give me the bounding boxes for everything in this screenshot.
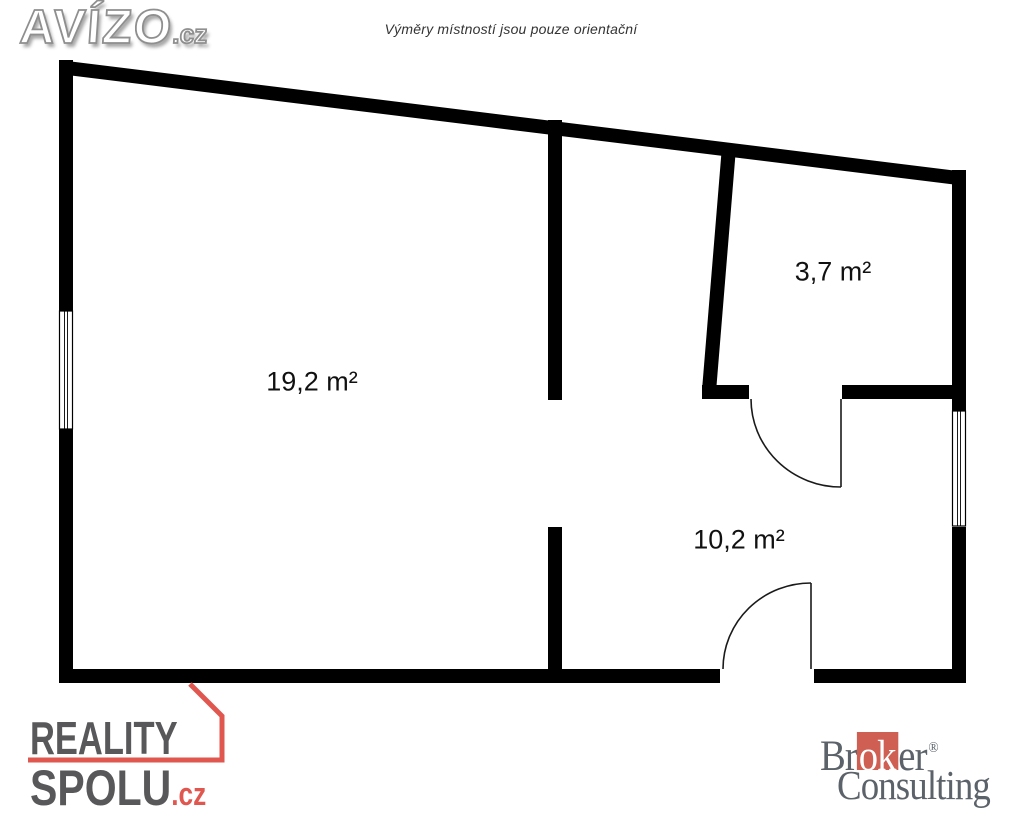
window-right-icon — [953, 411, 966, 526]
wall-bottom-left-segment — [59, 669, 720, 683]
wall-right-upper — [952, 170, 966, 411]
avizo-logo: AVÍZO.cz — [18, 4, 209, 52]
wall-interior-vertical-lower — [548, 527, 562, 683]
window-left-icon — [60, 311, 73, 429]
wall-interior-horizontal-right — [842, 385, 966, 399]
spolu-line: SPOLU.cz — [30, 763, 206, 813]
room-area-label: 3,7 m² — [795, 257, 872, 288]
walls — [59, 60, 966, 683]
registered-mark: ® — [928, 740, 937, 756]
avizo-brand-text: AVÍZO — [18, 1, 175, 54]
spolu-text: SPOLU — [30, 760, 171, 816]
room-area-label: 10,2 m² — [693, 525, 785, 556]
disclaimer-text: Výměry místností jsou pouze orientační — [385, 21, 638, 37]
wall-right-lower — [952, 527, 966, 683]
broker-consulting-logo: Broker® Consulting — [820, 726, 1024, 818]
door-arc-bottom — [723, 583, 811, 669]
wall-bottom-right-segment — [814, 669, 966, 683]
wall-interior-slanted — [702, 146, 736, 392]
reality-spolu-logo: REALITY SPOLU.cz — [28, 682, 258, 822]
reality-tld-text: .cz — [171, 776, 206, 812]
door-arc-interior — [751, 399, 841, 487]
wall-left-upper — [59, 60, 73, 312]
wall-left-lower — [59, 428, 73, 683]
wall-interior-vertical-upper — [548, 120, 562, 400]
room-area-label: 19,2 m² — [266, 367, 358, 398]
avizo-tld-text: .cz — [172, 19, 209, 49]
floorplan-page: 19,2 m² 3,7 m² 10,2 m² Výměry místností … — [0, 0, 1024, 827]
reality-text: REALITY — [30, 715, 178, 761]
wall-top — [59, 60, 966, 186]
consulting-word: Consulting — [837, 765, 990, 806]
wall-interior-horizontal-left — [702, 385, 749, 399]
